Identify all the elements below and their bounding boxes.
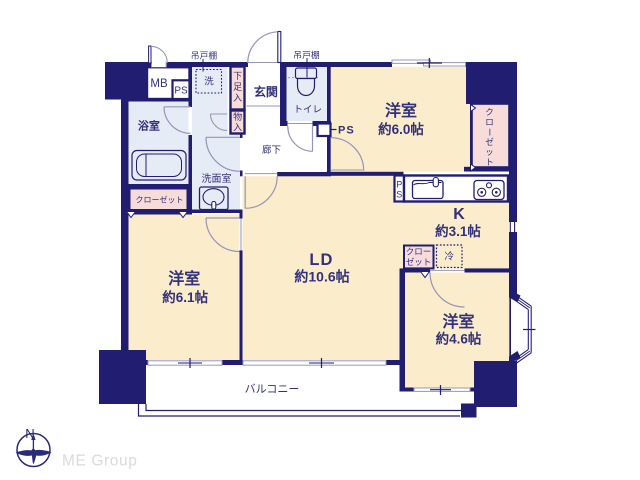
svg-text:K: K (453, 206, 465, 223)
svg-text:P: P (396, 180, 402, 190)
svg-text:ト: ト (485, 157, 494, 167)
svg-text:約3.1帖: 約3.1帖 (435, 223, 481, 239)
svg-text:洋室: 洋室 (168, 269, 200, 288)
svg-text:約6.1帖: 約6.1帖 (162, 289, 208, 305)
svg-text:入: 入 (233, 123, 242, 133)
svg-text:LD: LD (309, 251, 333, 269)
svg-text:約10.6帖: 約10.6帖 (294, 269, 349, 285)
svg-text:浴室: 浴室 (138, 119, 160, 133)
svg-text:MB: MB (150, 78, 168, 90)
svg-text:入: 入 (233, 93, 242, 103)
svg-text:洋室: 洋室 (385, 101, 417, 120)
svg-text:約4.6帖: 約4.6帖 (436, 331, 482, 347)
svg-text:吊戸棚: 吊戸棚 (191, 49, 218, 60)
svg-text:物: 物 (233, 111, 242, 122)
svg-text:クロー: クロー (406, 247, 432, 257)
svg-text:冷: 冷 (445, 251, 455, 263)
svg-text:PS: PS (338, 125, 355, 137)
svg-text:廊下: 廊下 (262, 144, 281, 156)
svg-text:PS: PS (174, 86, 188, 97)
svg-text:ゼ: ゼ (485, 137, 494, 147)
svg-text:下: 下 (233, 71, 242, 81)
svg-text:ク: ク (485, 107, 494, 117)
svg-text:約6.0帖: 約6.0帖 (378, 121, 424, 137)
svg-text:玄関: 玄関 (254, 84, 278, 99)
svg-text:吊戸棚: 吊戸棚 (293, 49, 320, 60)
svg-text:ゼット: ゼット (406, 257, 432, 267)
svg-text:クローゼット: クローゼット (136, 194, 184, 204)
svg-text:S: S (396, 190, 402, 200)
svg-text:バルコニー: バルコニー (245, 383, 300, 396)
svg-text:ME Group: ME Group (62, 453, 137, 470)
svg-text:ー: ー (485, 128, 495, 137)
svg-text:洗面室: 洗面室 (202, 172, 232, 185)
svg-text:洋室: 洋室 (442, 312, 474, 331)
svg-text:足: 足 (233, 82, 242, 92)
svg-text:ッ: ッ (485, 147, 494, 157)
svg-text:ロ: ロ (485, 117, 494, 127)
svg-text:トイレ: トイレ (293, 105, 322, 116)
svg-text:洗: 洗 (204, 75, 214, 87)
